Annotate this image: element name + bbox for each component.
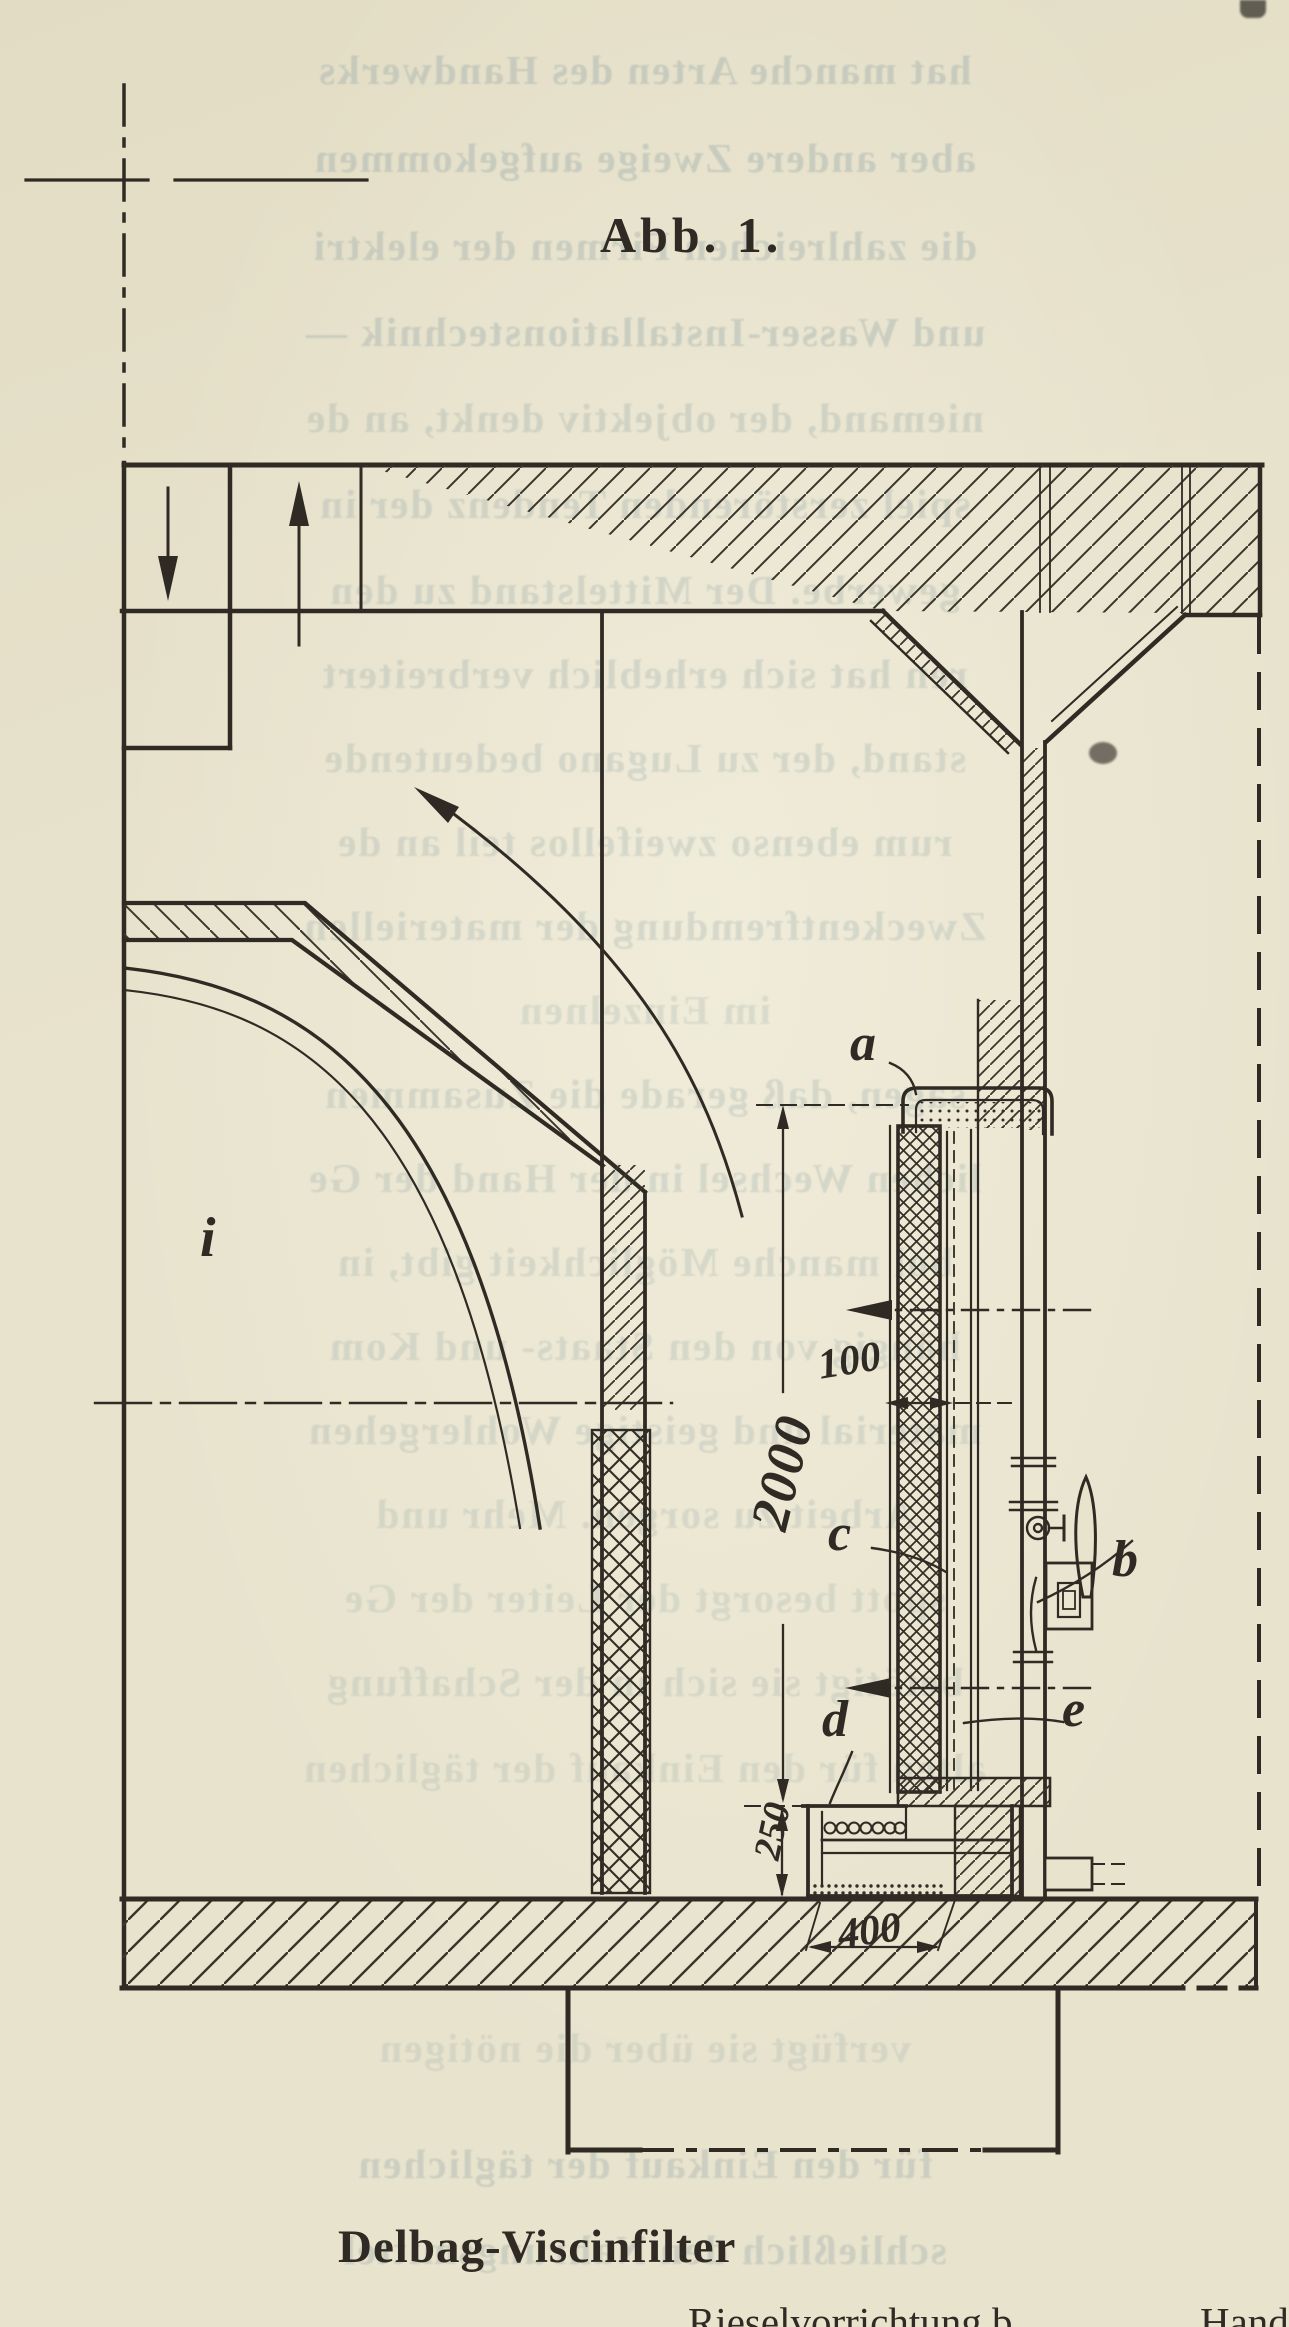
viscinfilter-section-drawing	[0, 0, 1289, 2327]
flow-arrows	[414, 787, 1090, 1698]
inner-wall-column	[592, 613, 650, 1893]
ink-smudge	[1089, 742, 1117, 764]
dimension-100: 100	[815, 1335, 884, 1386]
ink-smudge	[1240, 0, 1266, 18]
floor-slab	[122, 1899, 1256, 1988]
dimension-400: 400	[836, 1906, 904, 1955]
filter-element	[890, 1088, 1052, 1792]
part-label-i: i	[200, 1210, 216, 1266]
scanned-book-page: hat manche Arten des Handwerksaber ander…	[0, 0, 1289, 2327]
part-label-c: c	[828, 1508, 851, 1560]
caption-continuation-1: Rieselvorrichtung b	[688, 2298, 1013, 2327]
part-label-d: d	[822, 1694, 848, 1746]
figure-number: Abb. 1.	[600, 206, 782, 264]
drain-pipe	[978, 612, 1045, 1896]
caption-continuation-2: Hand	[1200, 2298, 1289, 2327]
part-label-e: e	[1062, 1684, 1085, 1736]
figure-caption: Delbag-Viscinfilter	[338, 2220, 736, 2274]
part-label-a: a	[850, 1018, 876, 1070]
part-label-b: b	[1112, 1534, 1138, 1586]
exhaust-duct-below	[568, 1988, 1058, 2152]
oil-trough	[803, 1778, 1132, 1897]
